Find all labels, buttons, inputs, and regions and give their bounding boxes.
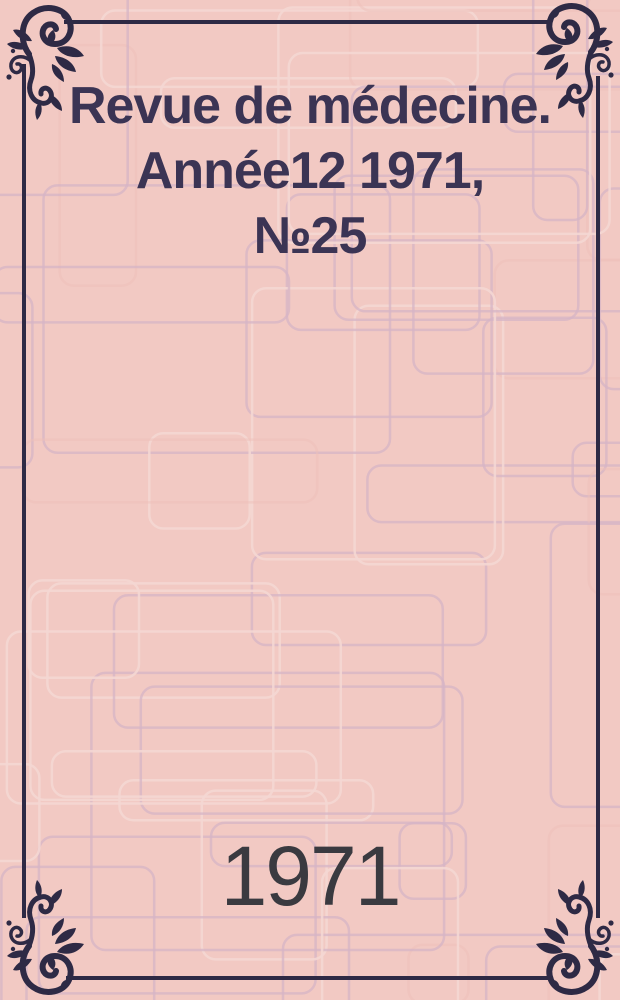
year-label: 1971 xyxy=(0,834,620,918)
book-cover: Revue de médecine. Année12 1971, №25 197… xyxy=(0,0,620,1000)
frame-bottom-line xyxy=(66,976,550,980)
title-line-1: Revue de médecine. xyxy=(12,74,608,139)
title-line-3: №25 xyxy=(12,204,608,269)
title-line-2: Année12 1971, xyxy=(12,139,608,204)
cover-title: Revue de médecine. Année12 1971, №25 xyxy=(12,74,608,269)
frame-top-line xyxy=(64,20,550,24)
